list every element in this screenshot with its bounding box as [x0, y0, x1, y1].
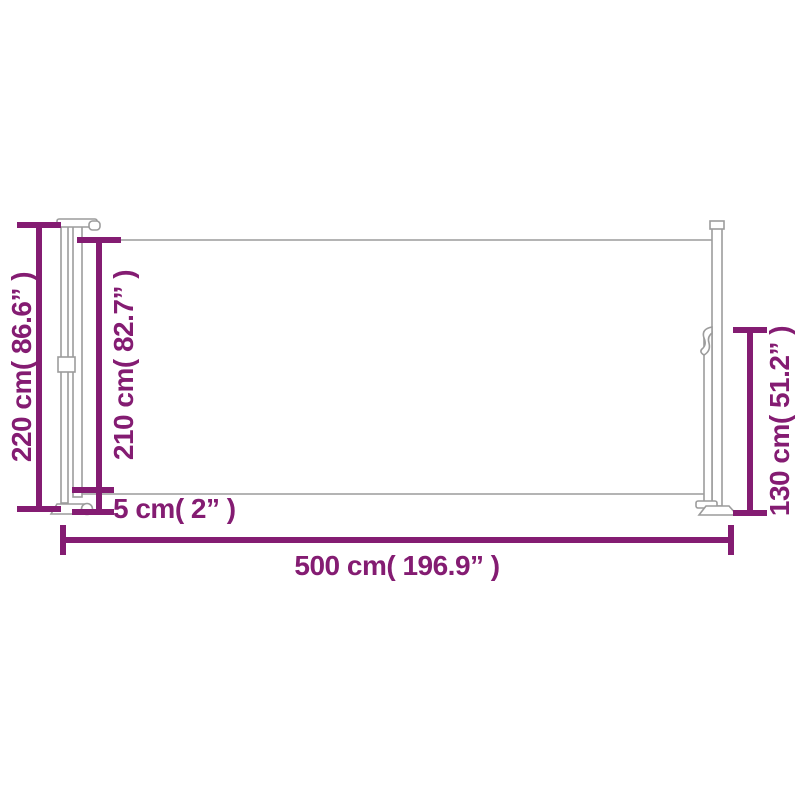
support-post	[712, 228, 722, 506]
dim-cap-handle-height-bottom	[733, 510, 767, 516]
support-post-cap	[710, 221, 724, 229]
dim-cap-bottom-gap-top	[72, 487, 114, 493]
pull-bar	[704, 332, 712, 502]
dim-line-fabric-height	[96, 237, 102, 515]
dim-label-bottom-gap: 5 cm( 2” )	[113, 495, 236, 523]
support-post-foot	[699, 506, 737, 515]
cassette-top-knob	[89, 221, 100, 230]
dim-cap-total-height-top	[17, 222, 61, 228]
dim-cap-handle-height-top	[733, 327, 767, 333]
dim-cap-fabric-height-top	[77, 237, 121, 243]
dim-cap-total-length-right	[728, 525, 734, 555]
product-outline	[51, 219, 737, 515]
dim-label-total-height: 220 cm( 86.6” )	[8, 272, 36, 462]
dim-label-handle-height: 130 cm( 51.2” )	[766, 326, 794, 516]
cassette-bracket	[58, 357, 75, 372]
diagram-canvas: 220 cm( 86.6” ) 210 cm( 82.7” ) 5 cm( 2”…	[0, 0, 800, 800]
dim-label-fabric-height: 210 cm( 82.7” )	[110, 270, 138, 460]
dim-label-total-length: 500 cm( 196.9” )	[294, 552, 499, 580]
dim-line-handle-height	[747, 330, 753, 513]
dim-line-total-length	[63, 537, 731, 543]
dim-cap-total-length-left	[60, 525, 66, 555]
dim-cap-bottom-gap-bottom	[72, 509, 114, 515]
dim-cap-total-height-bottom	[17, 506, 61, 512]
